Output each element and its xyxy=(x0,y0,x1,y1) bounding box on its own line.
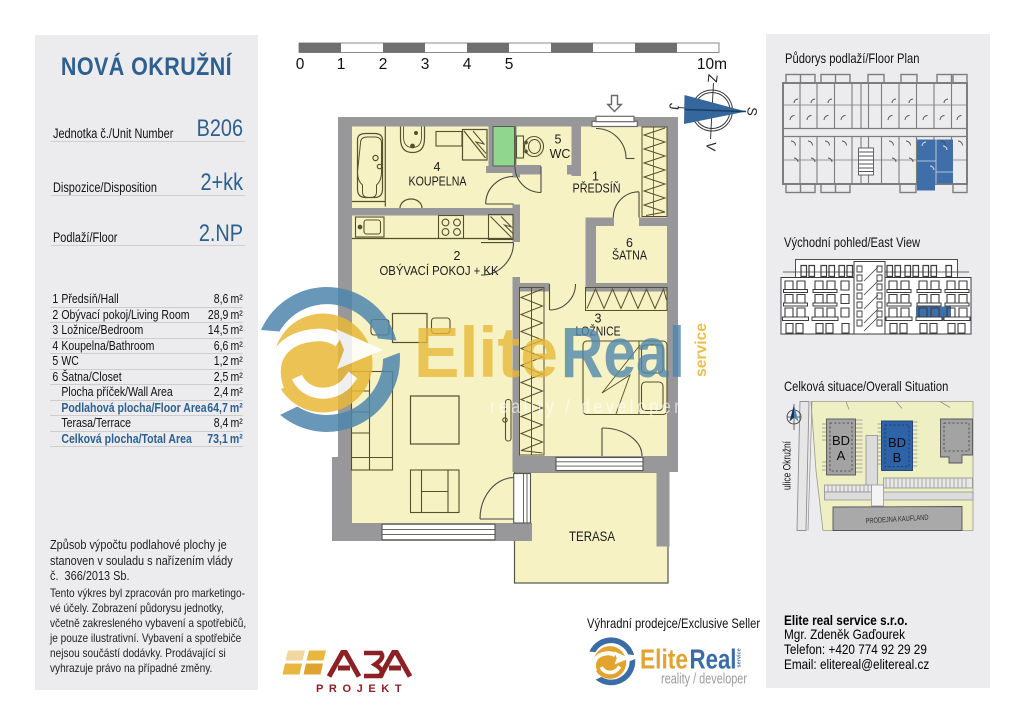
svg-text:TERASA: TERASA xyxy=(569,529,615,544)
svg-text:S: S xyxy=(744,106,760,117)
svg-text:BD: BD xyxy=(832,433,850,448)
svg-text:WC: WC xyxy=(550,147,571,161)
svg-text:5: 5 xyxy=(555,133,562,147)
svg-text:Elite: Elite xyxy=(640,644,688,675)
svg-text:Real: Real xyxy=(690,644,737,675)
svg-text:reality / developer: reality / developer xyxy=(490,397,683,418)
svg-text:service: service xyxy=(737,648,743,667)
svg-text:BD: BD xyxy=(888,435,906,450)
svg-text:ulice Okružní: ulice Okružní xyxy=(782,441,794,490)
svg-text:reality / developer: reality / developer xyxy=(661,672,747,688)
svg-text:J: J xyxy=(666,102,682,110)
svg-text:Z: Z xyxy=(705,74,721,84)
svg-text:5: 5 xyxy=(505,56,514,73)
svg-text:ŠATNA: ŠATNA xyxy=(612,248,648,263)
svg-text:0: 0 xyxy=(296,56,305,73)
svg-text:2: 2 xyxy=(379,56,388,73)
svg-text:V: V xyxy=(703,141,719,152)
svg-text:Real: Real xyxy=(561,314,685,393)
svg-text:KOUPELNA: KOUPELNA xyxy=(409,175,468,189)
svg-text:OBÝVACÍ POKOJ + KK: OBÝVACÍ POKOJ + KK xyxy=(380,263,500,278)
svg-text:4: 4 xyxy=(434,160,441,174)
svg-text:4: 4 xyxy=(463,56,472,73)
svg-text:1: 1 xyxy=(337,56,346,73)
svg-text:PROJEKT: PROJEKT xyxy=(316,683,407,695)
svg-text:Elite: Elite xyxy=(414,314,558,393)
svg-text:A: A xyxy=(837,448,846,463)
svg-text:PŘEDSÍŇ: PŘEDSÍŇ xyxy=(573,181,621,196)
svg-text:service: service xyxy=(693,323,710,377)
svg-text:B: B xyxy=(893,450,902,465)
svg-text:3: 3 xyxy=(421,56,430,73)
svg-text:10m: 10m xyxy=(697,56,727,73)
svg-text:2: 2 xyxy=(454,249,461,263)
